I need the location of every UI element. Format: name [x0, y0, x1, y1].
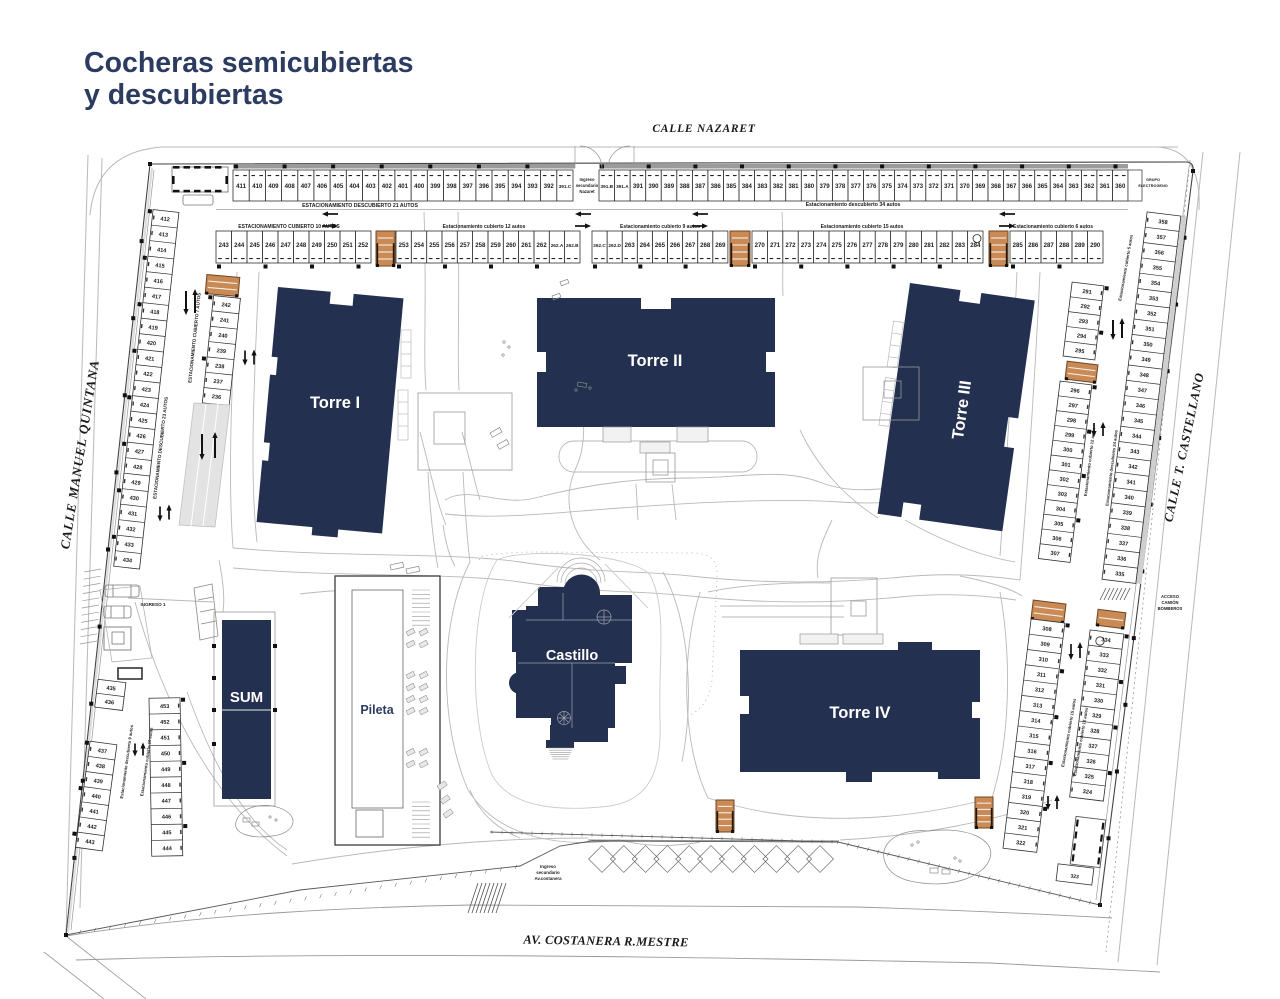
svg-text:318: 318	[1023, 779, 1033, 786]
svg-text:Estacionamiento cubierto 12 au: Estacionamiento cubierto 12 autos	[443, 224, 526, 230]
svg-text:421: 421	[145, 356, 155, 363]
svg-text:267: 267	[685, 242, 696, 249]
svg-text:CAMIÓN: CAMIÓN	[1162, 600, 1179, 605]
svg-text:Torre II: Torre II	[628, 352, 683, 370]
svg-text:245: 245	[250, 242, 261, 249]
svg-text:385: 385	[726, 183, 737, 190]
svg-text:369: 369	[975, 183, 986, 190]
svg-text:305: 305	[1054, 521, 1064, 528]
svg-text:451: 451	[160, 736, 169, 742]
svg-text:311: 311	[1036, 672, 1046, 679]
svg-text:251: 251	[343, 242, 354, 249]
svg-text:387: 387	[695, 183, 706, 190]
svg-text:SUM: SUM	[230, 689, 263, 706]
svg-text:413: 413	[158, 232, 168, 239]
svg-text:268: 268	[700, 242, 711, 249]
svg-text:300: 300	[1063, 447, 1073, 454]
svg-text:301: 301	[1061, 462, 1071, 469]
svg-text:397: 397	[463, 183, 474, 190]
svg-text:329: 329	[1092, 713, 1102, 720]
svg-text:372: 372	[928, 183, 939, 190]
svg-text:430: 430	[129, 495, 139, 502]
svg-text:262.A: 262.A	[551, 243, 564, 248]
svg-text:361: 361	[1100, 183, 1111, 190]
svg-text:420: 420	[146, 340, 156, 347]
svg-text:429: 429	[131, 480, 141, 487]
svg-text:266: 266	[670, 242, 681, 249]
svg-text:388: 388	[679, 183, 690, 190]
svg-text:356: 356	[1154, 250, 1164, 257]
svg-text:406: 406	[317, 183, 328, 190]
svg-text:424: 424	[140, 402, 151, 409]
svg-text:441: 441	[89, 809, 99, 816]
svg-text:442: 442	[87, 824, 97, 831]
svg-text:ACCESO: ACCESO	[1161, 594, 1180, 599]
svg-text:242: 242	[221, 302, 231, 309]
svg-text:346: 346	[1135, 403, 1145, 410]
svg-text:299: 299	[1065, 432, 1075, 439]
svg-text:434: 434	[122, 557, 133, 564]
svg-text:278: 278	[878, 242, 889, 249]
svg-text:284: 284	[970, 242, 981, 249]
svg-text:390: 390	[648, 183, 659, 190]
svg-text:262.C: 262.C	[593, 243, 606, 248]
svg-text:426: 426	[136, 433, 146, 440]
svg-text:244: 244	[234, 242, 245, 249]
svg-text:241: 241	[220, 318, 230, 325]
svg-text:257: 257	[460, 242, 471, 249]
svg-text:298: 298	[1066, 418, 1076, 425]
svg-text:261: 261	[521, 242, 532, 249]
svg-text:383: 383	[757, 183, 768, 190]
svg-text:436: 436	[104, 699, 114, 706]
svg-text:280: 280	[909, 242, 920, 249]
svg-text:240: 240	[218, 333, 228, 340]
svg-text:274: 274	[816, 242, 827, 249]
svg-text:453: 453	[160, 704, 169, 710]
svg-text:448: 448	[161, 783, 170, 789]
svg-text:310: 310	[1038, 657, 1048, 664]
svg-text:440: 440	[91, 794, 101, 801]
svg-text:321: 321	[1018, 825, 1028, 832]
svg-text:273: 273	[801, 242, 812, 249]
svg-text:422: 422	[143, 371, 153, 378]
svg-text:334: 334	[1101, 637, 1112, 644]
svg-text:Estacionamiento cubierto 9 aut: Estacionamiento cubierto 9 autos	[620, 224, 700, 230]
svg-text:410: 410	[252, 183, 263, 190]
svg-text:407: 407	[301, 183, 312, 190]
svg-text:330: 330	[1093, 698, 1103, 705]
svg-text:439: 439	[93, 778, 103, 785]
svg-text:239: 239	[216, 348, 226, 355]
svg-text:243: 243	[219, 242, 230, 249]
svg-text:445: 445	[162, 830, 171, 836]
svg-text:324: 324	[1082, 789, 1093, 796]
svg-text:378: 378	[835, 183, 846, 190]
svg-text:Cocheras semicubiertas: Cocheras semicubiertas	[84, 47, 414, 79]
svg-text:452: 452	[160, 720, 169, 726]
svg-text:249: 249	[312, 242, 323, 249]
svg-text:Ingreso: Ingreso	[579, 177, 595, 182]
svg-text:Estacionamiento descubierto 34: Estacionamiento descubierto 34 autos	[806, 202, 901, 208]
svg-text:438: 438	[95, 763, 105, 770]
svg-text:325: 325	[1084, 774, 1094, 781]
svg-text:309: 309	[1040, 641, 1050, 648]
svg-text:306: 306	[1052, 536, 1062, 543]
svg-text:350: 350	[1143, 342, 1153, 349]
svg-text:262: 262	[537, 242, 548, 249]
svg-text:246: 246	[265, 242, 276, 249]
svg-text:381: 381	[788, 183, 799, 190]
svg-text:320: 320	[1019, 810, 1029, 817]
svg-text:382: 382	[773, 183, 784, 190]
svg-text:376: 376	[866, 183, 877, 190]
svg-text:404: 404	[349, 183, 360, 190]
svg-text:302: 302	[1059, 477, 1069, 484]
svg-text:427: 427	[134, 449, 144, 456]
svg-text:ESTACIONAMIENTO CUBIERTO 10 A: ESTACIONAMIENTO CUBIERTO 10 AUTOS	[238, 224, 340, 230]
svg-text:391.C: 391.C	[559, 184, 572, 189]
svg-text:423: 423	[141, 387, 151, 394]
svg-text:360: 360	[1115, 183, 1126, 190]
svg-text:316: 316	[1027, 748, 1037, 755]
svg-text:349: 349	[1141, 357, 1151, 364]
svg-text:296: 296	[1070, 388, 1080, 395]
svg-text:353: 353	[1149, 296, 1159, 303]
svg-text:283: 283	[955, 242, 966, 249]
svg-text:279: 279	[893, 242, 904, 249]
svg-text:248: 248	[296, 242, 307, 249]
svg-text:294: 294	[1077, 333, 1088, 340]
svg-text:259: 259	[491, 242, 502, 249]
svg-text:327: 327	[1088, 743, 1098, 750]
svg-text:308: 308	[1042, 626, 1052, 633]
svg-text:271: 271	[770, 242, 781, 249]
svg-text:358: 358	[1158, 219, 1168, 226]
svg-text:437: 437	[97, 748, 107, 755]
svg-text:Pileta: Pileta	[360, 703, 394, 717]
svg-text:277: 277	[862, 242, 873, 249]
svg-text:338: 338	[1120, 525, 1130, 532]
svg-text:450: 450	[161, 751, 170, 757]
svg-text:322: 322	[1016, 840, 1026, 847]
svg-text:258: 258	[475, 242, 486, 249]
svg-text:265: 265	[655, 242, 666, 249]
svg-text:367: 367	[1006, 183, 1017, 190]
svg-text:315: 315	[1029, 733, 1039, 740]
svg-text:352: 352	[1147, 311, 1157, 318]
svg-text:282: 282	[939, 242, 950, 249]
svg-text:Ingreso: Ingreso	[540, 864, 556, 869]
svg-text:341: 341	[1126, 479, 1136, 486]
svg-text:391.B: 391.B	[601, 184, 614, 189]
svg-text:275: 275	[832, 242, 843, 249]
svg-text:secundario: secundario	[536, 870, 560, 875]
svg-text:331: 331	[1095, 683, 1105, 690]
svg-text:417: 417	[151, 294, 161, 301]
svg-text:293: 293	[1078, 319, 1088, 326]
svg-text:297: 297	[1068, 403, 1078, 410]
svg-text:443: 443	[85, 839, 95, 846]
svg-text:291: 291	[1082, 289, 1092, 296]
svg-text:431: 431	[128, 511, 138, 518]
svg-text:285: 285	[1013, 242, 1024, 249]
svg-text:254: 254	[414, 242, 425, 249]
svg-text:366: 366	[1022, 183, 1033, 190]
svg-text:Torre I: Torre I	[310, 394, 360, 412]
svg-text:295: 295	[1075, 348, 1085, 355]
svg-text:250: 250	[327, 242, 338, 249]
svg-text:336: 336	[1117, 556, 1127, 563]
svg-text:ESTACIONAMIENTO DESCUBIERTO 21: ESTACIONAMIENTO DESCUBIERTO 21 AUTOS	[302, 203, 418, 209]
svg-text:326: 326	[1086, 759, 1096, 766]
svg-text:Nazaret: Nazaret	[579, 189, 595, 194]
svg-text:449: 449	[161, 767, 170, 773]
svg-text:373: 373	[913, 183, 924, 190]
svg-text:409: 409	[268, 183, 279, 190]
svg-text:363: 363	[1068, 183, 1079, 190]
svg-text:414: 414	[157, 247, 168, 254]
svg-text:348: 348	[1139, 372, 1149, 379]
svg-text:371: 371	[944, 183, 955, 190]
svg-text:365: 365	[1037, 183, 1048, 190]
svg-text:402: 402	[382, 183, 393, 190]
svg-text:286: 286	[1028, 242, 1039, 249]
svg-text:412: 412	[160, 216, 170, 223]
svg-text:386: 386	[711, 183, 722, 190]
svg-text:247: 247	[281, 242, 292, 249]
svg-text:337: 337	[1118, 541, 1128, 548]
svg-text:347: 347	[1137, 388, 1147, 395]
svg-text:416: 416	[153, 278, 163, 285]
svg-text:398: 398	[446, 183, 457, 190]
svg-text:INGRESO 1: INGRESO 1	[140, 602, 165, 607]
svg-text:255: 255	[429, 242, 440, 249]
svg-text:269: 269	[715, 242, 726, 249]
svg-text:270: 270	[755, 242, 766, 249]
svg-text:314: 314	[1031, 718, 1042, 725]
svg-text:394: 394	[511, 183, 522, 190]
svg-text:262.B: 262.B	[566, 243, 579, 248]
svg-text:237: 237	[213, 379, 223, 386]
svg-text:288: 288	[1059, 242, 1070, 249]
svg-text:446: 446	[162, 815, 171, 821]
svg-text:377: 377	[851, 183, 862, 190]
svg-text:403: 403	[366, 183, 377, 190]
svg-text:Av.costanera: Av.costanera	[534, 876, 562, 881]
svg-text:253: 253	[399, 242, 410, 249]
svg-text:389: 389	[664, 183, 675, 190]
svg-text:380: 380	[804, 183, 815, 190]
svg-text:264: 264	[640, 242, 651, 249]
svg-text:304: 304	[1055, 506, 1066, 513]
svg-text:Castillo: Castillo	[546, 648, 599, 664]
svg-text:290: 290	[1090, 242, 1101, 249]
svg-text:289: 289	[1075, 242, 1086, 249]
svg-text:333: 333	[1099, 652, 1109, 659]
svg-text:Torre IV: Torre IV	[829, 704, 890, 722]
svg-text:340: 340	[1124, 495, 1134, 502]
svg-text:ELECTROGENO: ELECTROGENO	[1138, 184, 1167, 188]
svg-text:y descubiertas: y descubiertas	[84, 79, 284, 111]
svg-text:CALLE NAZARET: CALLE NAZARET	[652, 123, 756, 135]
svg-text:262.D: 262.D	[608, 243, 621, 248]
svg-text:401: 401	[398, 183, 409, 190]
svg-text:354: 354	[1150, 280, 1161, 287]
svg-text:364: 364	[1053, 183, 1064, 190]
svg-text:287: 287	[1044, 242, 1055, 249]
svg-text:408: 408	[285, 183, 296, 190]
svg-text:375: 375	[882, 183, 893, 190]
svg-text:379: 379	[820, 183, 831, 190]
svg-text:323: 323	[1070, 873, 1079, 880]
svg-text:319: 319	[1021, 794, 1031, 801]
svg-text:433: 433	[124, 542, 134, 549]
svg-text:313: 313	[1033, 703, 1043, 710]
svg-text:342: 342	[1128, 464, 1138, 471]
svg-text:252: 252	[358, 242, 369, 249]
svg-text:395: 395	[495, 183, 506, 190]
svg-text:393: 393	[527, 183, 538, 190]
svg-text:357: 357	[1156, 235, 1166, 242]
svg-text:355: 355	[1152, 265, 1162, 272]
svg-text:332: 332	[1097, 668, 1107, 675]
svg-text:447: 447	[162, 799, 171, 805]
svg-text:392: 392	[544, 183, 555, 190]
svg-text:351: 351	[1145, 326, 1155, 333]
svg-text:432: 432	[126, 526, 136, 533]
svg-text:236: 236	[211, 394, 221, 401]
svg-text:317: 317	[1025, 764, 1035, 771]
svg-text:435: 435	[106, 685, 116, 692]
svg-text:276: 276	[847, 242, 858, 249]
svg-text:400: 400	[414, 183, 425, 190]
svg-text:263: 263	[625, 242, 636, 249]
svg-text:418: 418	[150, 309, 160, 316]
svg-text:Estacionamiento cubierto 15 au: Estacionamiento cubierto 15 autos	[821, 224, 904, 230]
svg-text:428: 428	[133, 464, 143, 471]
svg-text:307: 307	[1050, 551, 1060, 558]
svg-text:343: 343	[1130, 449, 1140, 456]
svg-text:281: 281	[924, 242, 935, 249]
svg-text:396: 396	[479, 183, 490, 190]
svg-text:260: 260	[506, 242, 517, 249]
svg-text:411: 411	[236, 183, 246, 190]
svg-text:328: 328	[1090, 728, 1100, 735]
svg-text:GRUPO: GRUPO	[1146, 178, 1160, 182]
svg-text:415: 415	[155, 263, 165, 270]
svg-text:391: 391	[633, 183, 644, 190]
svg-text:303: 303	[1057, 491, 1067, 498]
svg-text:374: 374	[897, 183, 908, 190]
svg-text:AV. COSTANERA R.MESTRE: AV. COSTANERA R.MESTRE	[522, 933, 688, 950]
svg-text:368: 368	[991, 183, 1002, 190]
svg-text:335: 335	[1115, 571, 1125, 578]
svg-text:secundario: secundario	[576, 183, 599, 188]
svg-text:292: 292	[1080, 304, 1090, 311]
svg-text:272: 272	[785, 242, 796, 249]
svg-text:344: 344	[1132, 433, 1143, 440]
svg-text:425: 425	[138, 418, 148, 425]
svg-text:345: 345	[1133, 418, 1143, 425]
svg-text:370: 370	[960, 183, 971, 190]
svg-text:Estacionamiento cubierto 6 aut: Estacionamiento cubierto 6 autos	[1013, 224, 1093, 230]
svg-text:BOMBEROS: BOMBEROS	[1158, 606, 1183, 611]
svg-text:444: 444	[162, 846, 172, 852]
svg-text:256: 256	[445, 242, 456, 249]
svg-text:391.A: 391.A	[616, 184, 629, 189]
svg-text:362: 362	[1084, 183, 1095, 190]
svg-text:399: 399	[430, 183, 441, 190]
svg-text:339: 339	[1122, 510, 1132, 517]
svg-text:312: 312	[1034, 687, 1044, 694]
svg-text:405: 405	[333, 183, 344, 190]
svg-text:419: 419	[148, 325, 158, 332]
svg-text:384: 384	[742, 183, 753, 190]
svg-text:238: 238	[215, 364, 225, 371]
